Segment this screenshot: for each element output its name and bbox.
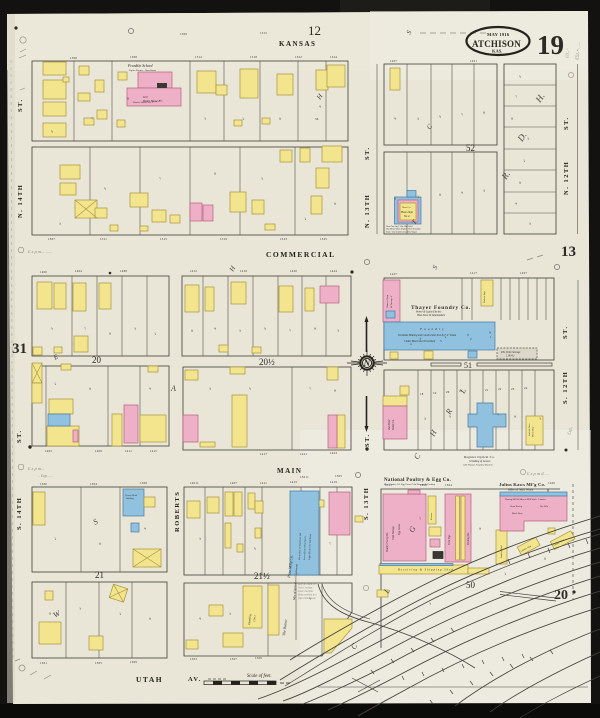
svg-text:Pattern Shop: Pattern Shop (386, 294, 389, 309)
svg-text:1305: 1305 (335, 474, 342, 478)
svg-text:Egg Cases: Egg Cases (398, 524, 401, 536)
svg-text:1505: 1505 (95, 661, 102, 665)
svg-text:13: 13 (561, 244, 576, 260)
svg-text:1508: 1508 (140, 481, 147, 485)
svg-text:Regnier Optical Co.: Regnier Optical Co. (464, 455, 495, 459)
svg-text:14011: 14011 (190, 481, 199, 485)
svg-text:Wood Work'g: Wood Work'g (510, 506, 523, 508)
svg-text:18: 18 (420, 392, 424, 396)
svg-text:36: 36 (315, 117, 319, 121)
svg-text:(2)...··: (2)...·· (564, 48, 570, 58)
svg-text:1501: 1501 (40, 661, 47, 665)
svg-text:N: N (363, 358, 371, 368)
svg-text:ST.: ST. (364, 433, 371, 447)
svg-text:1415: 1415 (290, 480, 297, 484)
svg-text:AV.: AV. (188, 676, 202, 683)
svg-text:1312: 1312 (385, 483, 392, 487)
svg-text:Hose Dept: Hose Dept (400, 211, 413, 214)
svg-text:1509: 1509 (255, 656, 262, 660)
svg-text:Lumber Shed: Lumber Shed (500, 545, 503, 559)
svg-text:12: 12 (308, 23, 321, 38)
svg-text:ST.: ST. (17, 98, 24, 112)
svg-text:1408: 1408 (120, 269, 127, 273)
svg-text:Heat Stove & Salamanders: Heat Stove & Salamanders (416, 314, 445, 317)
svg-text:1424: 1424 (330, 269, 337, 273)
svg-text:& Storage 2: & Storage 2 (390, 295, 393, 308)
svg-text:ST.: ST. (16, 429, 23, 443)
svg-text:Franklin School: Franklin School (127, 64, 153, 68)
svg-text:1325: 1325 (320, 237, 327, 241)
svg-text:Elevator: Elevator (430, 512, 433, 521)
svg-text:52: 52 (466, 143, 475, 153)
svg-text:Packing Ho: Packing Ho (467, 532, 470, 546)
svg-text:Stable Co: Stable Co (392, 419, 395, 430)
svg-text:1: 1 (490, 335, 492, 339)
svg-text:Work Shop: Work Shop (532, 426, 535, 437)
svg-text:1412: 1412 (190, 269, 197, 273)
svg-text:Victory Metal: Victory Metal (125, 495, 138, 497)
svg-text:1308: 1308 (130, 55, 137, 59)
svg-text:.. £xp......: .. £xp...... (38, 473, 53, 478)
svg-text:1318: 1318 (250, 55, 257, 59)
svg-text:N. 12TH: N. 12TH (563, 161, 570, 195)
svg-text:1322: 1322 (295, 55, 302, 59)
svg-text:1324: 1324 (330, 55, 337, 59)
svg-text:£ x p m..........: £ x p m.......... (28, 249, 52, 254)
svg-text:Planing Mill & Mfrs of Mill Wo: Planing Mill & Mfrs of Mill Work · Lumbe… (505, 498, 546, 501)
svg-text:Cold Storage: Cold Storage (392, 525, 395, 540)
svg-text:22: 22 (498, 387, 502, 391)
svg-text:No 2.: No 2. (403, 215, 410, 218)
svg-text:2: 2 (470, 337, 472, 341)
svg-text:24: 24 (524, 386, 528, 390)
svg-text:1307: 1307 (48, 237, 55, 241)
svg-text:21: 21 (485, 388, 489, 392)
svg-text:Schl: Schl (143, 96, 148, 99)
svg-text:Boiler House B½: Boiler House B½ (143, 100, 163, 103)
svg-text:N. 14TH: N. 14TH (17, 184, 24, 218)
svg-text:1319: 1319 (220, 237, 227, 241)
svg-text:Feed Stge: Feed Stge (448, 534, 451, 546)
svg-text:1400: 1400 (40, 270, 47, 274)
svg-text:1323: 1323 (280, 237, 287, 241)
svg-text:Foundry: Foundry (419, 327, 446, 331)
svg-text:31: 31 (12, 341, 27, 357)
svg-text:1411: 1411 (125, 449, 132, 453)
svg-text:Julius Kaws Mf'g Co.: Julius Kaws Mf'g Co. (499, 482, 545, 487)
svg-text:1500: 1500 (40, 482, 47, 486)
svg-text:23: 23 (511, 387, 515, 391)
svg-text:1200: 1200 (548, 481, 555, 485)
svg-text:ST.: ST. (563, 116, 570, 130)
svg-text:ST.: ST. (364, 146, 371, 160)
svg-text:1405: 1405 (45, 449, 52, 453)
svg-text:51: 51 (464, 361, 472, 370)
svg-text:1503: 1503 (190, 657, 197, 661)
svg-text:1207: 1207 (520, 271, 527, 275)
svg-text:UTAH: UTAH (136, 675, 163, 684)
svg-text:4: 4 (410, 342, 412, 346)
svg-text:S. 14TH: S. 14TH (16, 497, 23, 530)
svg-text:KAS.: KAS. (492, 49, 502, 54)
svg-text:ROBERTS: ROBERTS (174, 491, 181, 532)
svg-text:S. 13TH: S. 13TH (363, 487, 370, 520)
svg-text:1201: 1201 (470, 59, 477, 63)
svg-text:MAIN: MAIN (277, 467, 302, 475)
svg-text:1308: 1308 (420, 483, 427, 487)
svg-text:21½: 21½ (254, 571, 270, 581)
svg-text:Mfrs of Mill Work: Mfrs of Mill Work (508, 488, 533, 492)
svg-text:20: 20 (446, 390, 450, 394)
svg-text:1411: 1411 (260, 481, 267, 485)
svg-text:1315: 1315 (260, 31, 267, 35)
svg-text:1507: 1507 (230, 657, 237, 661)
svg-text:20: 20 (92, 355, 102, 365)
svg-text:Receiving & Shipping Shed: Receiving & Shipping Shed (397, 569, 454, 572)
svg-text:Northside Heating and Construc: Northside Heating and Construction Iron … (397, 334, 456, 337)
svg-text:21: 21 (95, 570, 104, 580)
svg-text:KANSAS: KANSAS (279, 40, 316, 48)
svg-text:1423: 1423 (330, 451, 337, 455)
svg-text:20½: 20½ (259, 357, 275, 367)
svg-text:£ x p m d.....: £ x p m d..... (527, 471, 549, 476)
svg-text:1504: 1504 (90, 482, 97, 486)
svg-text:1217: 1217 (470, 271, 477, 275)
svg-text:1417: 1417 (260, 452, 267, 456)
svg-text:COMMERCIAL: COMMERCIAL (266, 250, 336, 259)
svg-text:Building: Building (126, 497, 135, 500)
svg-text:1227: 1227 (390, 272, 397, 276)
svg-text:3: 3 (440, 339, 442, 343)
svg-text:1416: 1416 (240, 269, 247, 273)
svg-text:1421: 1421 (300, 452, 307, 456)
svg-text:ATCHISON: ATCHISON (472, 39, 521, 49)
svg-text:1509: 1509 (130, 660, 137, 664)
svg-text:Dry Kiln: Dry Kiln (539, 506, 549, 508)
svg-text:S. 12TH: S. 12TH (562, 371, 569, 404)
svg-text:19: 19 (537, 30, 564, 60)
svg-text:1409: 1409 (95, 449, 102, 453)
svg-text:1404: 1404 (75, 269, 82, 273)
svg-text:1306: 1306 (70, 56, 77, 60)
svg-text:2nd Hand: 2nd Hand (388, 419, 391, 430)
svg-text:1314: 1314 (195, 55, 202, 59)
svg-text:Hose Cart 1st fl · City Hall 2: Hose Cart 1st fl · City Hall 2nd fl (385, 225, 413, 228)
svg-text:1311: 1311 (100, 237, 107, 241)
svg-text:ST.: ST. (562, 325, 569, 339)
svg-text:1315: 1315 (160, 237, 167, 241)
svg-text:One 40 Gal Chem Engine · Hook: One 40 Gal Chem Engine · Hook & Ladder (386, 228, 421, 231)
svg-text:1419: 1419 (330, 480, 337, 484)
svg-text:21: 21 (459, 389, 463, 393)
svg-text:1420: 1420 (290, 269, 297, 273)
svg-text:13011: 13011 (300, 475, 309, 479)
svg-text:1309: 1309 (180, 32, 187, 36)
svg-text:A: A (170, 384, 176, 393)
svg-text:( 1934 ): ( 1934 ) (506, 355, 514, 358)
svg-text:Poultry Feed'g Ho: Poultry Feed'g Ho (386, 532, 389, 553)
svg-text:Truck · One Combination Hose W: Truck · One Combination Hose Wagon (386, 230, 417, 233)
svg-text:1415: 1415 (150, 449, 157, 453)
svg-text:1407: 1407 (230, 481, 237, 485)
svg-text:Lights Electric · Heat Steam: Lights Electric · Heat Steam (128, 69, 156, 72)
svg-text:Scale of feet.: Scale of feet. (247, 674, 272, 679)
svg-text:Hose Co: Hose Co (402, 206, 411, 209)
svg-text:1304: 1304 (445, 483, 452, 487)
svg-text:Pattern Stge: Pattern Stge (483, 291, 486, 304)
svg-text:19: 19 (433, 391, 437, 395)
svg-text:£ x p m...: £ x p m... (28, 466, 45, 471)
svg-text:N. 13TH: N. 13TH (364, 194, 371, 228)
svg-text:1207: 1207 (390, 59, 397, 63)
svg-text:( Tin ): ( Tin ) (253, 615, 257, 622)
svg-text:with Thayer Foundry Electric: with Thayer Foundry Electric (463, 464, 494, 467)
svg-text:Mach Shop: Mach Shop (511, 513, 523, 515)
svg-text:MAY 1916: MAY 1916 (487, 32, 510, 37)
